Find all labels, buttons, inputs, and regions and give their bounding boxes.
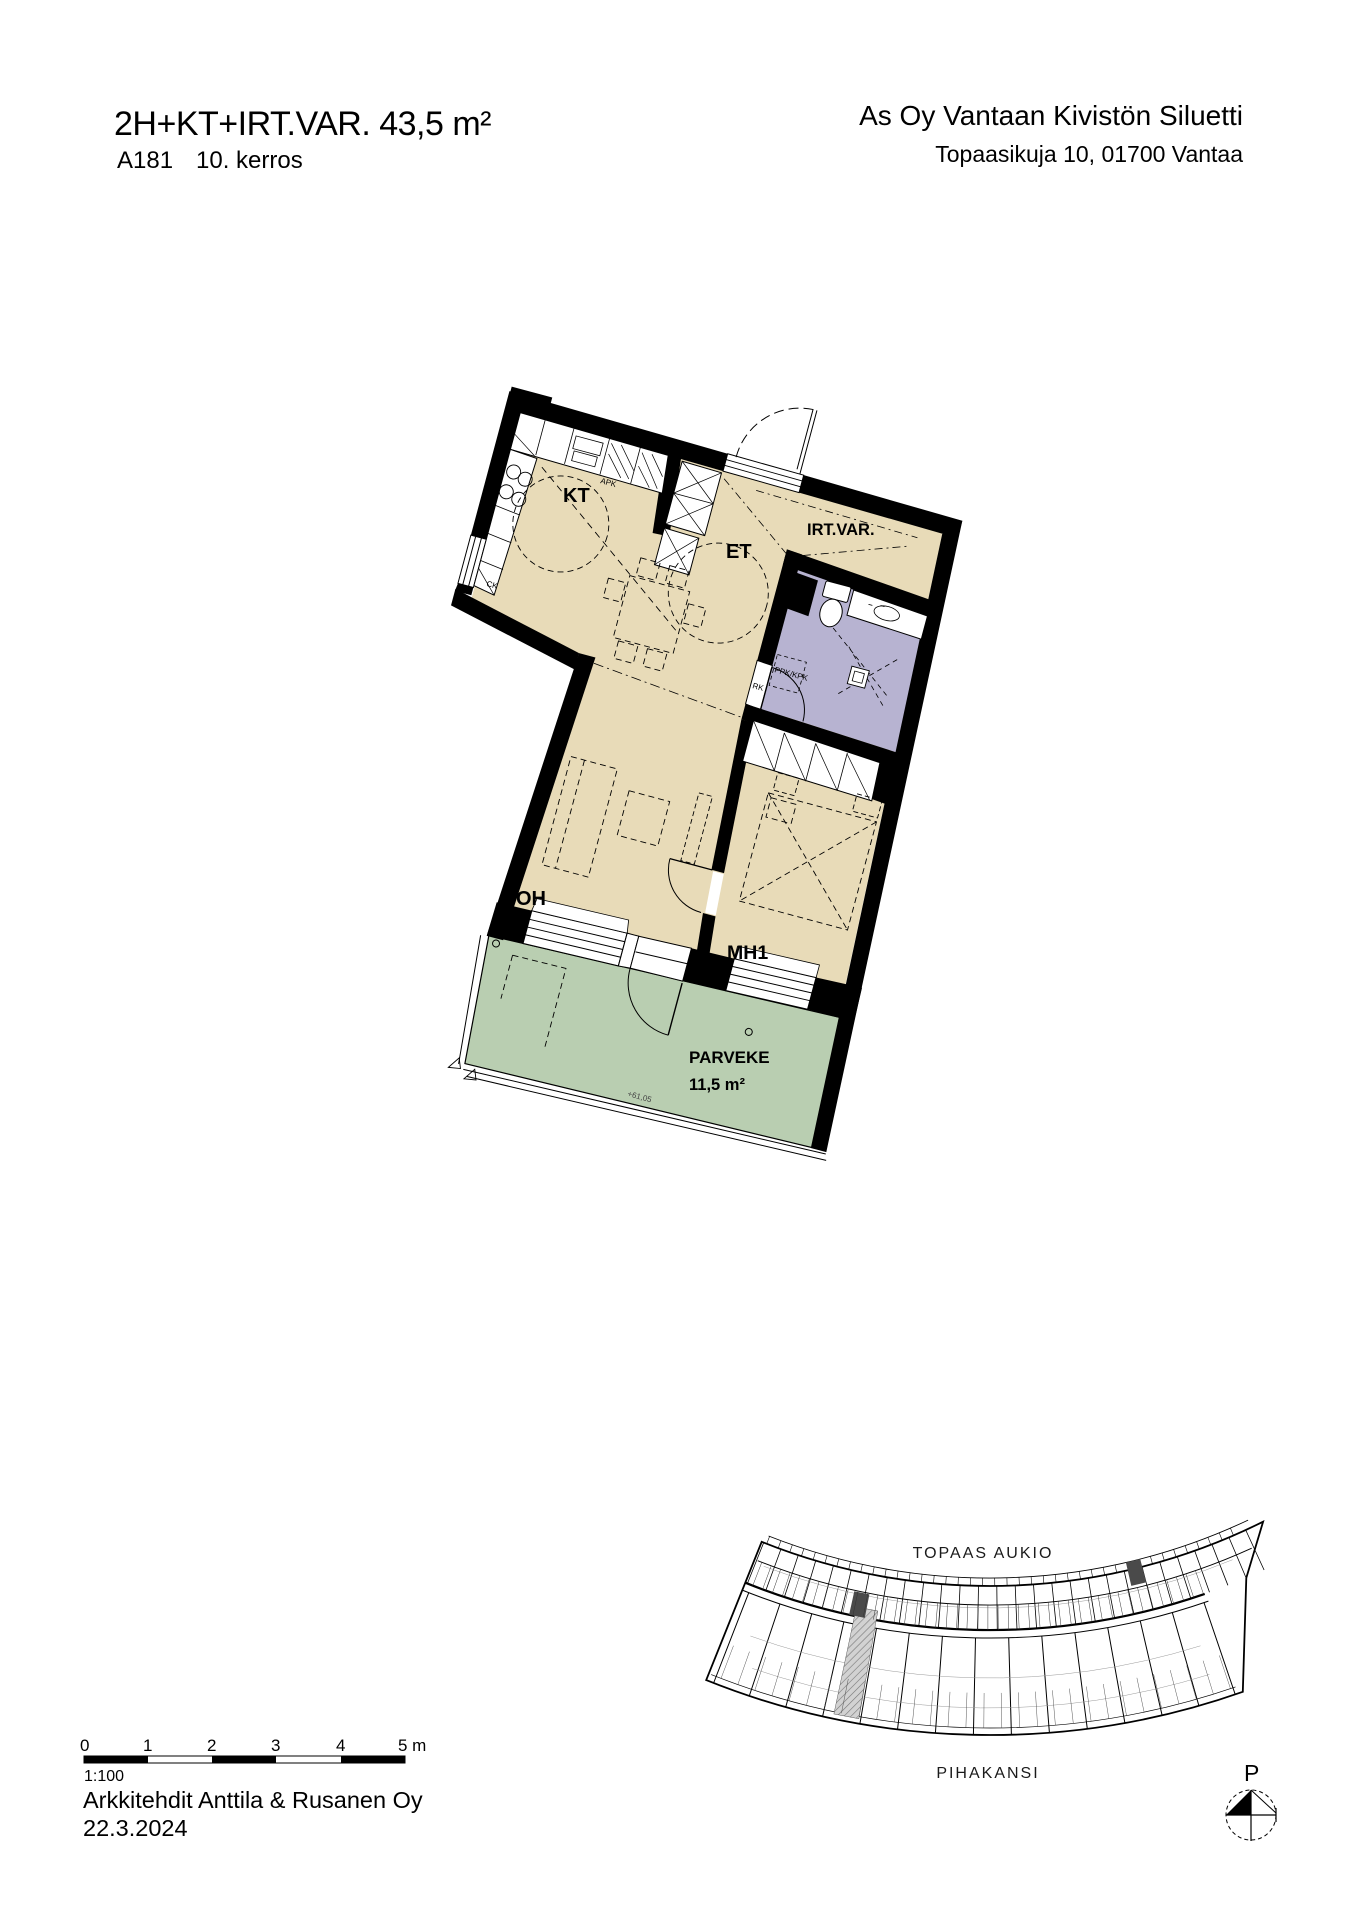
svg-text:A181: A181 (117, 147, 173, 174)
svg-text:4: 4 (336, 1736, 345, 1755)
svg-text:Topaasikuja 10, 01700 Vantaa: Topaasikuja 10, 01700 Vantaa (935, 141, 1243, 167)
svg-text:MH1: MH1 (727, 942, 768, 964)
svg-text:P: P (1244, 1760, 1259, 1786)
svg-text:2H+KT+IRT.VAR. 43,5 m²: 2H+KT+IRT.VAR. 43,5 m² (114, 105, 491, 143)
svg-text:1: 1 (143, 1736, 152, 1755)
svg-text:KT: KT (563, 485, 590, 507)
svg-text:PARVEKE: PARVEKE (689, 1048, 770, 1067)
svg-text:As Oy Vantaan Kivistön Siluett: As Oy Vantaan Kivistön Siluetti (859, 100, 1243, 131)
svg-text:11,5 m²: 11,5 m² (689, 1076, 745, 1094)
svg-text:IRT.VAR.: IRT.VAR. (807, 521, 875, 539)
svg-text:3: 3 (271, 1736, 280, 1755)
svg-text:0: 0 (80, 1736, 89, 1755)
svg-text:10. kerros: 10. kerros (196, 147, 303, 174)
svg-text:5 m: 5 m (398, 1736, 426, 1755)
svg-text:1:100: 1:100 (84, 1768, 124, 1785)
svg-text:PIHAKANSI: PIHAKANSI (936, 1765, 1039, 1782)
svg-text:Arkkitehdit Anttila & Rusanen: Arkkitehdit Anttila & Rusanen Oy (83, 1787, 423, 1813)
svg-text:ET: ET (726, 541, 752, 563)
svg-text:OH: OH (516, 888, 546, 910)
svg-text:2: 2 (207, 1736, 216, 1755)
svg-text:TOPAAS AUKIO: TOPAAS AUKIO (913, 1545, 1054, 1562)
svg-text:22.3.2024: 22.3.2024 (83, 1815, 188, 1841)
